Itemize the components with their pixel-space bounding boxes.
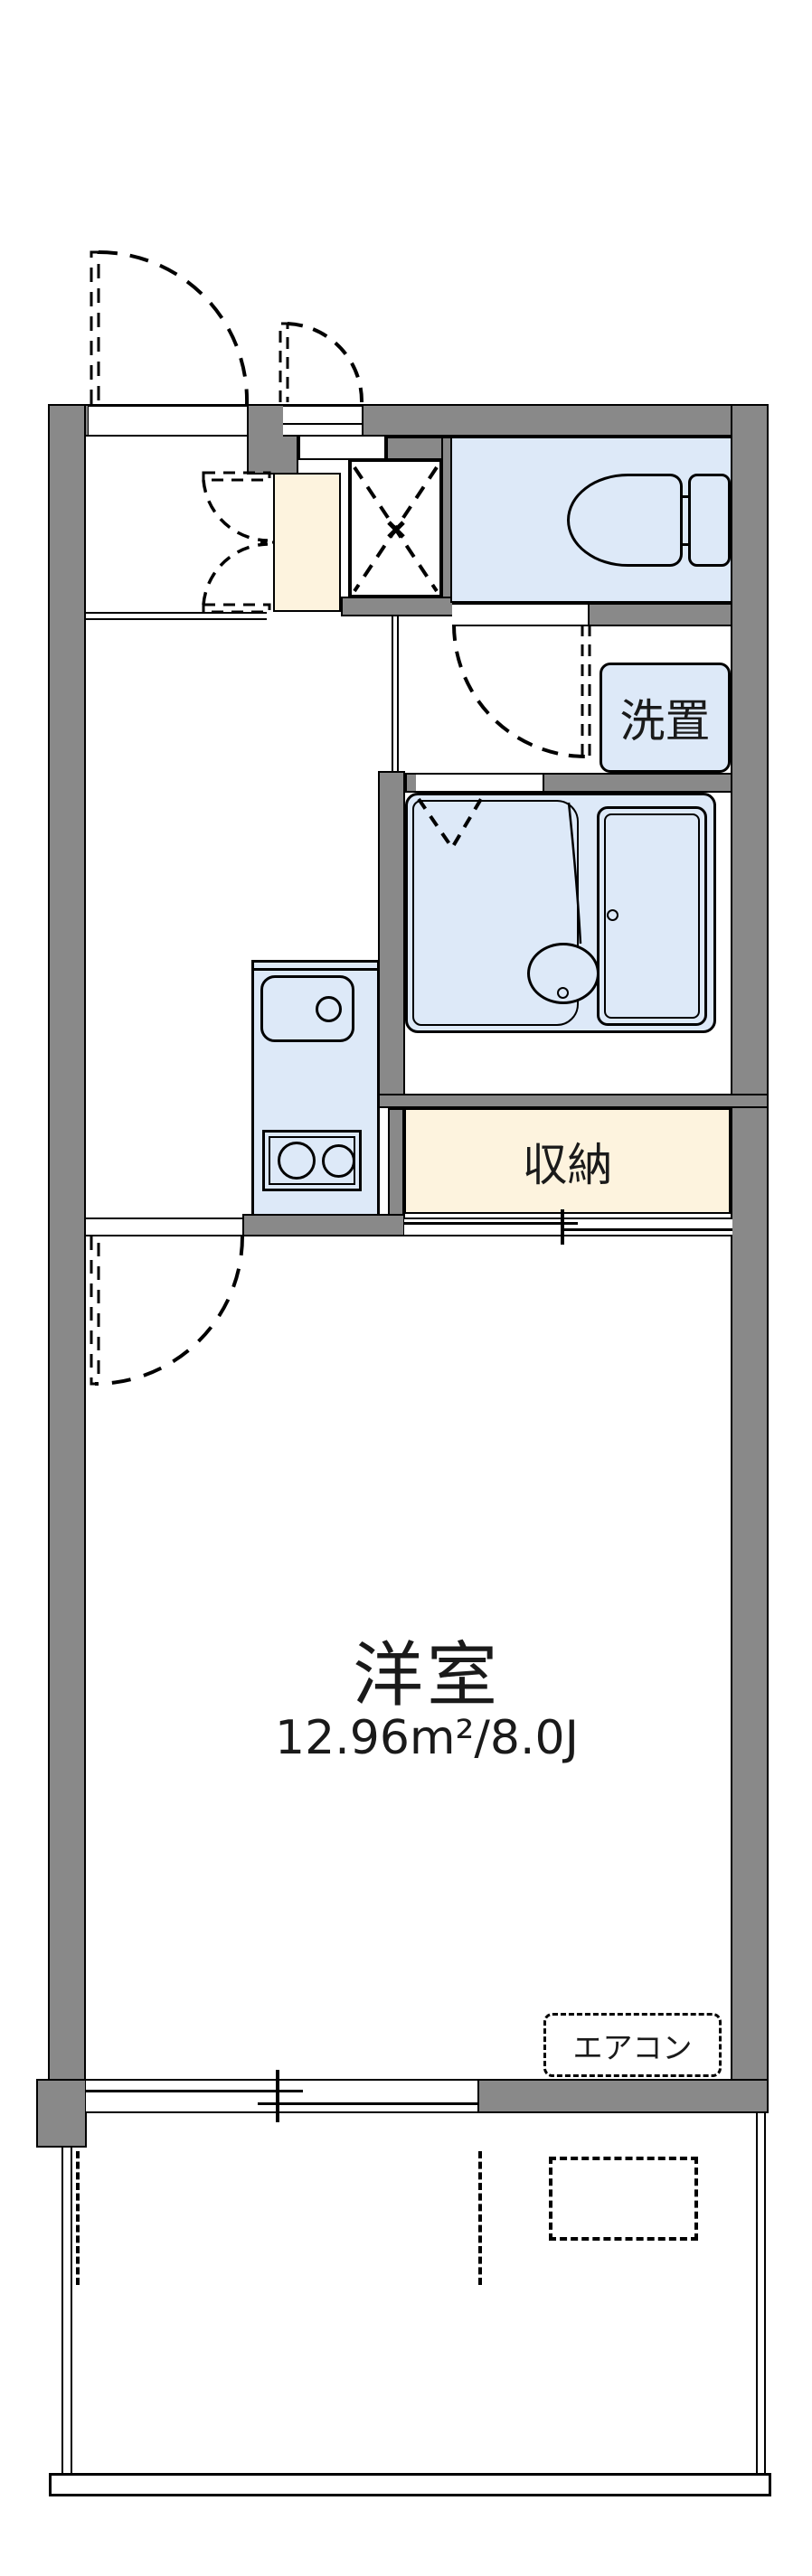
wall-bath-top-right [543,773,732,793]
shoe-cabinet [273,473,341,612]
stove-burner-left [278,1142,316,1180]
kitchen-counter-edge [251,968,380,971]
window-pane-lower [258,2102,478,2105]
wall-meterbox-bottom [341,597,454,616]
entrance-threshold [89,404,247,437]
toilet-door-leaf [582,625,590,757]
wall-bath-left [378,771,405,1096]
toilet-connector-bottom [680,543,690,546]
toilet-door-threshold [452,603,588,626]
entrance-niche [298,437,386,460]
balcony-right-edge [756,2113,766,2477]
closet-sliding-doors [404,1217,732,1236]
toilet-connector-top [680,495,690,498]
meterbox-door-leaf [280,324,288,402]
meterbox-threshold [283,404,362,437]
balcony-overhang-dash-left [76,2151,80,2285]
toilet-tank [688,474,731,567]
wall-bottom-right [477,2079,769,2113]
wall-bottom-corner [36,2079,87,2148]
wall-toilet-bottom [588,603,732,626]
entrance-step-line [84,612,267,620]
laundry-space: 洗置 [600,663,731,773]
bath-drain [557,987,569,999]
wall-closet-left [388,1108,404,1217]
cabinet-door-top-arc [203,480,268,541]
main-room-name-text: 洋室 [353,1619,501,1720]
wall-bath-bottom [378,1094,769,1108]
outdoor-ac-unit [549,2157,698,2241]
closet-room: 収納 [404,1108,731,1214]
bathtub-drain [607,909,618,921]
main-room-area: 12.96m²/8.0J [156,1710,698,1766]
balcony-railing [49,2473,771,2496]
window-tick [276,2070,279,2122]
laundry-label: 洗置 [620,685,711,750]
cabinet-door-bottom-arc [203,544,268,605]
toilet-bowl [567,474,683,567]
window-pane-upper [86,2090,303,2092]
room-door-arc [95,1236,242,1384]
main-room-title: 洋室 [156,1629,698,1710]
closet-slide-line-lower [561,1228,732,1231]
closet-slide-tick [561,1209,564,1245]
wall-right [731,404,769,2113]
meterbox-threshold-line [283,423,362,425]
wall-top-right [362,404,769,437]
cabinet-door-bottom-leaf [203,605,269,612]
meterbox-door-arc [288,324,362,402]
balcony-left-edge [61,2146,72,2477]
partition-line [392,616,399,773]
toilet-door-arc [454,625,586,757]
room-door-threshold [86,1217,242,1236]
main-room-area-text: 12.96m²/8.0J [275,1711,579,1765]
aircon-label: エアコン [573,2024,693,2067]
bath-door-threshold [416,773,543,793]
closet-label: 収納 [523,1129,613,1194]
kitchen-faucet [316,996,342,1022]
entrance-door-leaf [91,252,99,404]
aircon-box: エアコン [543,2013,722,2077]
closet-slide-line-upper [404,1222,578,1225]
floor-plan: 洗置 収納 洋室 12.96m²/8.0J エアコン [0,0,812,2576]
entrance-door-arc [99,252,247,404]
wall-kitchen-bottom [242,1214,405,1236]
main-window [86,2079,478,2113]
balcony-overhang-dash-mid [478,2151,482,2285]
wall-left [48,404,86,2113]
meter-box [348,458,443,598]
room-door-leaf [91,1236,99,1384]
stove-burner-right [322,1144,355,1178]
